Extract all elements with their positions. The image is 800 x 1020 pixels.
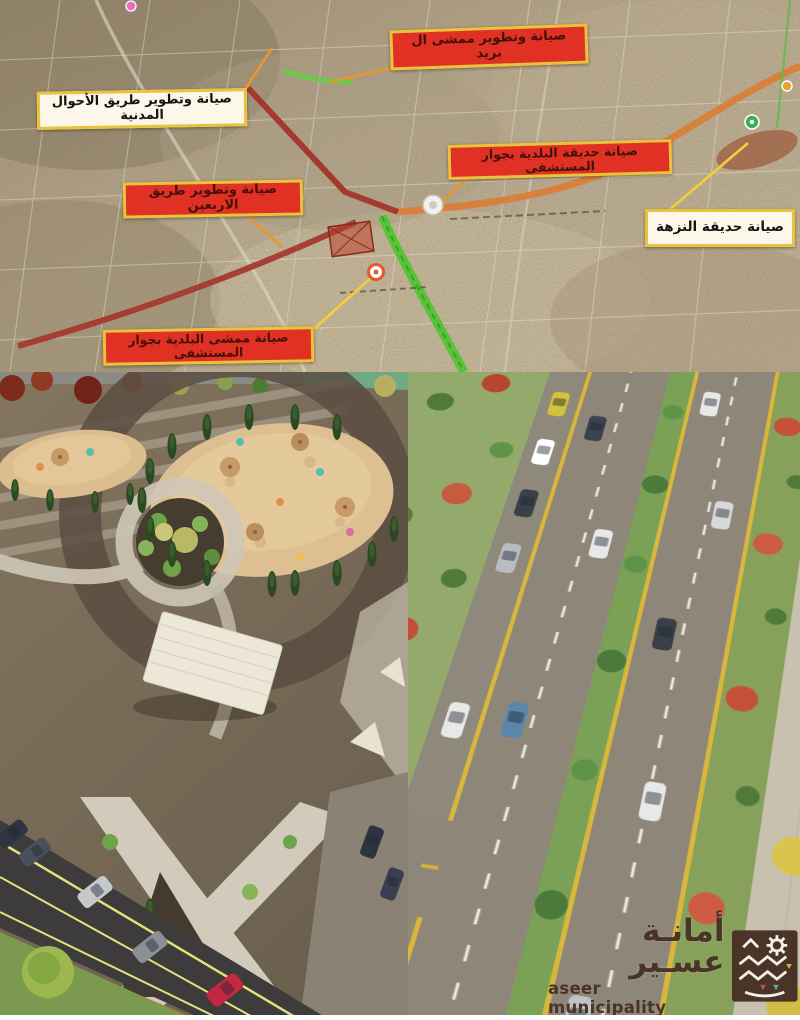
satellite-map: صيانة وتطوير ممشى ال بريد صيانة وتطوير ط… bbox=[0, 0, 800, 372]
logo-text: أمانـة عسـير aseer municipality bbox=[548, 916, 724, 1017]
callout-municipal-park-hospital: صيانة حديقة البلدية بجوار المستشفى bbox=[448, 139, 673, 180]
hospital-marker-dot bbox=[374, 270, 379, 275]
callout-nuzha-park: صيانة حديقة النزهة bbox=[645, 209, 795, 247]
callout-civil-affairs-road: صيانة وتطوير طريق الأحوال المدنية bbox=[37, 88, 248, 130]
park-render-art bbox=[0, 372, 408, 1020]
junction-marker-glyph bbox=[429, 201, 437, 209]
callout-albarid-walkway: صيانة وتطوير ممشى ال بريد bbox=[389, 24, 588, 71]
callout-arbaeen-road: صيانة وتطوير طريق الاربعين bbox=[123, 179, 304, 218]
municipality-projects-poster: صيانة وتطوير ممشى ال بريد صيانة وتطوير ط… bbox=[0, 0, 800, 1020]
aseer-emblem-icon bbox=[732, 928, 798, 1004]
municipality-logo: أمانـة عسـير aseer municipality bbox=[548, 922, 798, 1010]
project-site-square bbox=[328, 221, 374, 257]
pink-pin-marker bbox=[126, 1, 136, 11]
bottom-border bbox=[0, 1015, 800, 1020]
park-pin-dot bbox=[750, 120, 754, 124]
callout-municipal-walkway-hospital: صيانة ممشى البلدية بجوار المستشفى bbox=[103, 326, 315, 366]
logo-english-name: aseer municipality bbox=[548, 979, 724, 1017]
poi-marker bbox=[782, 81, 792, 91]
logo-arabic-name: أمانـة عسـير bbox=[548, 916, 724, 978]
park-render bbox=[0, 372, 408, 1020]
